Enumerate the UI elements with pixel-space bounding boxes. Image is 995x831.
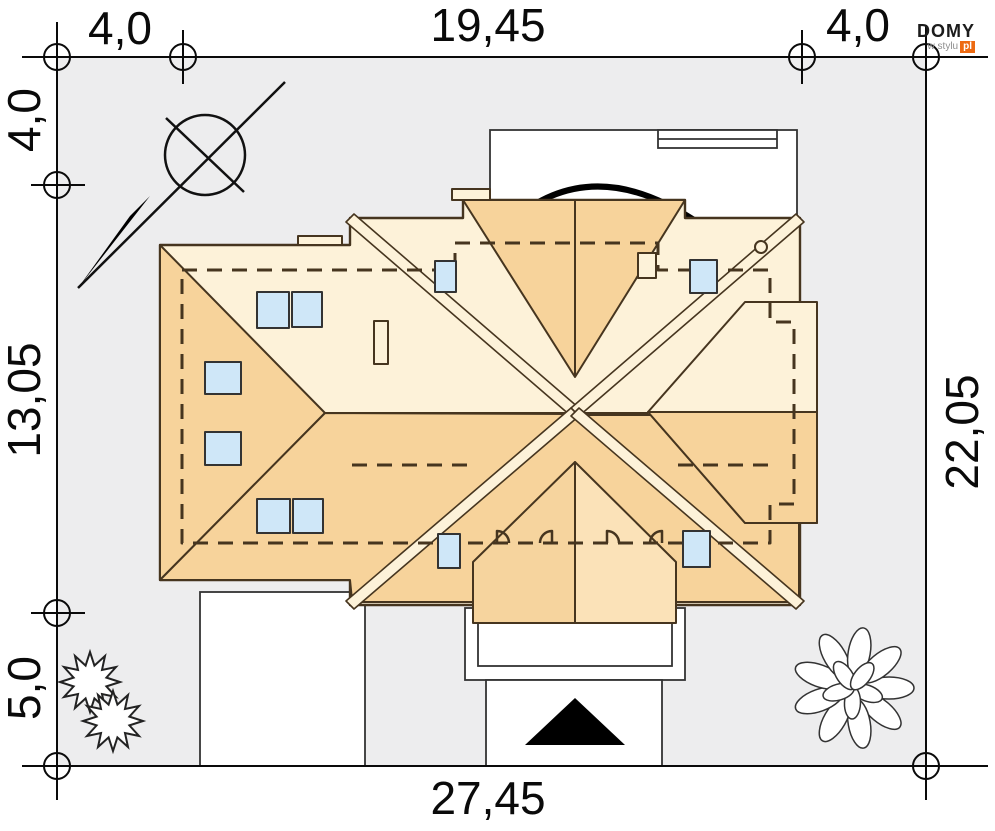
chimney — [298, 236, 342, 245]
skylight-window — [292, 292, 322, 327]
site-plan-page: 4,0 19,45 4,0 4,0 13,05 5,0 22,05 27,45 … — [0, 0, 995, 831]
skylight-window — [435, 261, 456, 292]
dim-top-right: 4,0 — [826, 0, 890, 51]
chimney — [374, 321, 388, 364]
skylight-window — [438, 534, 460, 568]
skylight-window — [205, 362, 241, 394]
skylight-window — [293, 499, 323, 533]
house-roof — [160, 189, 817, 623]
brand-tld-badge: pl — [960, 41, 975, 53]
brand-tagline: w stylu — [928, 41, 959, 52]
dim-left-top: 4,0 — [0, 88, 50, 152]
dim-right: 22,05 — [936, 374, 988, 489]
dim-top-center: 19,45 — [430, 0, 545, 51]
roof-vent — [755, 241, 767, 253]
chimney — [452, 189, 490, 200]
skylight-window — [683, 531, 710, 567]
garage-driveway — [200, 592, 365, 766]
dim-bottom: 27,45 — [430, 772, 545, 824]
chimney — [638, 253, 656, 278]
site-plan-drawing: 4,0 19,45 4,0 4,0 13,05 5,0 22,05 27,45 — [0, 0, 995, 831]
skylight-window — [257, 499, 290, 533]
dim-left-middle: 13,05 — [0, 342, 50, 457]
brand-name: DOMY — [917, 22, 975, 40]
dim-top-left: 4,0 — [88, 2, 152, 54]
skylight-window — [205, 432, 241, 465]
skylight-window — [690, 260, 717, 293]
dim-left-bottom: 5,0 — [0, 656, 50, 720]
brand-logo: DOMY w stylupl — [917, 22, 975, 53]
skylight-window — [257, 292, 289, 328]
